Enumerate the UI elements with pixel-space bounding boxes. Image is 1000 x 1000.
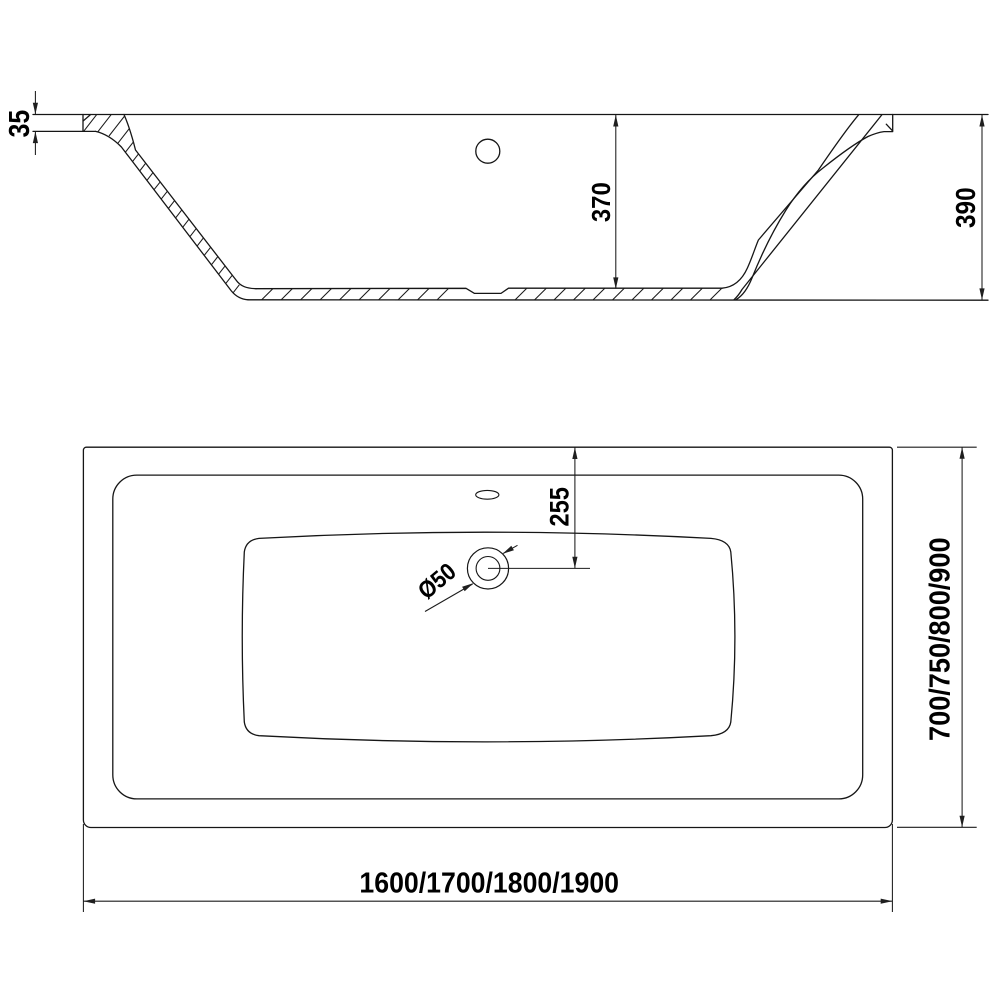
svg-text:390: 390: [949, 187, 981, 228]
svg-text:1600/1700/1800/1900: 1600/1700/1800/1900: [359, 866, 619, 898]
svg-text:35: 35: [3, 110, 35, 138]
svg-text:370: 370: [587, 182, 616, 222]
svg-text:700/750/800/900: 700/750/800/900: [924, 537, 956, 740]
svg-text:255: 255: [545, 487, 575, 527]
